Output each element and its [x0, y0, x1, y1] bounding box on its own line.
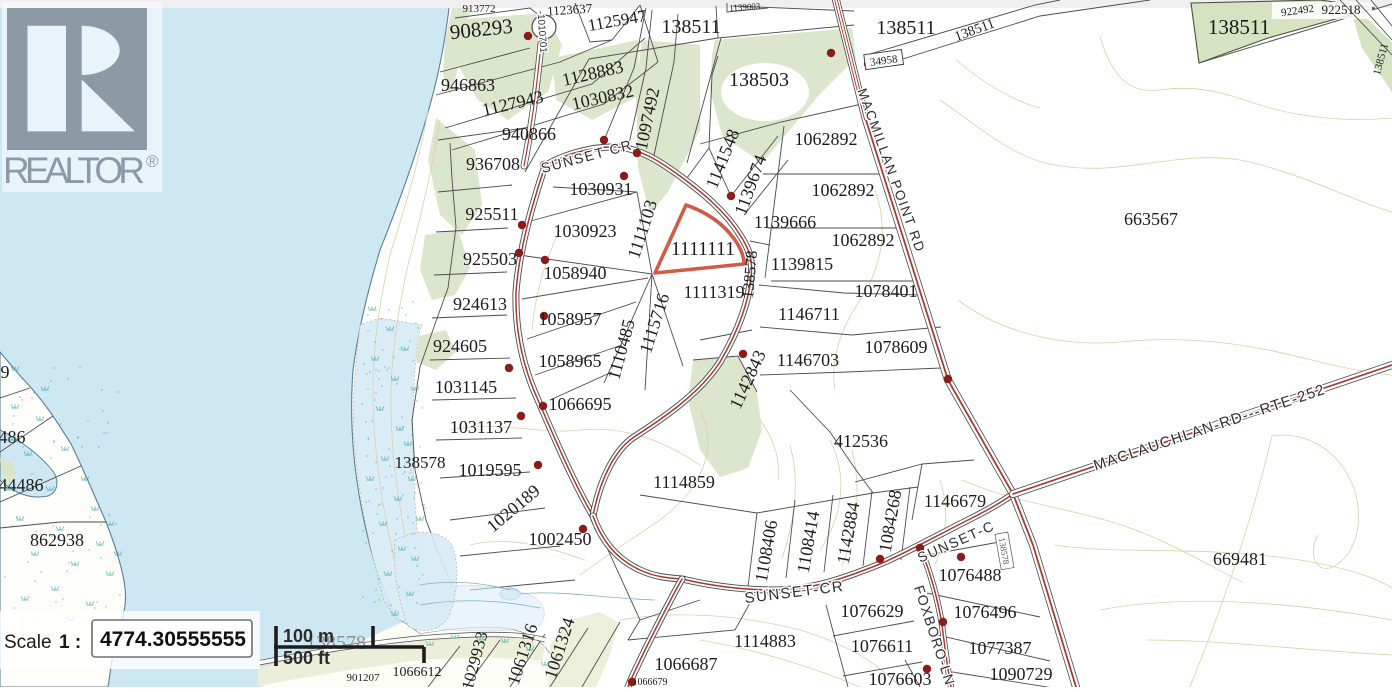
svg-text:1066612: 1066612	[393, 665, 442, 680]
svg-text:1111319: 1111319	[684, 282, 745, 302]
svg-text:Scale: Scale	[4, 632, 52, 653]
svg-text:925503: 925503	[463, 249, 517, 269]
svg-text:1058957: 1058957	[539, 309, 602, 329]
svg-text:1090729: 1090729	[990, 664, 1053, 684]
svg-text:1058940: 1058940	[544, 263, 607, 283]
svg-text:1062892: 1062892	[795, 129, 858, 149]
svg-text:924605: 924605	[433, 336, 487, 356]
svg-text:1076611: 1076611	[851, 636, 913, 656]
svg-text:®: ®	[146, 152, 159, 171]
svg-text:1076496: 1076496	[954, 602, 1017, 622]
svg-text:500 ft: 500 ft	[283, 648, 330, 668]
svg-text:1076629: 1076629	[841, 601, 904, 621]
svg-text:138511: 138511	[876, 17, 935, 39]
svg-text:44486: 44486	[0, 475, 44, 495]
svg-text:1078609: 1078609	[865, 337, 928, 357]
svg-text:1139666: 1139666	[754, 212, 816, 232]
svg-text:925511: 925511	[465, 204, 518, 224]
svg-text:1114859: 1114859	[653, 472, 715, 492]
svg-text:936708: 936708	[466, 154, 520, 174]
svg-text:1066679: 1066679	[633, 677, 668, 687]
svg-text:1058965: 1058965	[539, 351, 602, 371]
svg-text:901207: 901207	[347, 672, 381, 684]
svg-text:1077387: 1077387	[969, 638, 1032, 658]
svg-text:663567: 663567	[1124, 209, 1178, 229]
svg-text:1031145: 1031145	[435, 377, 497, 397]
svg-text:REALTOR: REALTOR	[3, 150, 145, 191]
svg-text:862938: 862938	[30, 530, 84, 550]
svg-text:669481: 669481	[1213, 549, 1267, 569]
svg-text:1019595: 1019595	[459, 460, 522, 480]
svg-text:1066695: 1066695	[549, 394, 612, 414]
svg-text:1076488: 1076488	[939, 565, 1002, 585]
svg-text:946863: 946863	[441, 75, 495, 95]
svg-text:138511: 138511	[661, 16, 720, 38]
svg-text:1030923: 1030923	[554, 221, 617, 241]
svg-text:1 :: 1 :	[59, 632, 81, 653]
svg-text:1030931: 1030931	[570, 179, 633, 199]
svg-text:922518: 922518	[1322, 2, 1361, 17]
svg-text:9: 9	[1, 362, 10, 382]
svg-text:412536: 412536	[834, 431, 888, 451]
svg-text:1114883: 1114883	[734, 631, 796, 651]
svg-text:1146703: 1146703	[777, 350, 839, 370]
svg-text:1066687: 1066687	[655, 654, 718, 674]
svg-text:138578: 138578	[395, 453, 446, 472]
svg-text:486: 486	[0, 427, 26, 447]
svg-text:1031137: 1031137	[450, 417, 512, 437]
svg-text:924613: 924613	[453, 294, 507, 314]
svg-text:1062892: 1062892	[832, 230, 895, 250]
svg-text:1002450: 1002450	[529, 529, 592, 549]
svg-text:100 m: 100 m	[283, 626, 334, 646]
svg-text:138511: 138511	[1208, 15, 1270, 39]
svg-text:4774.30555555: 4774.30555555	[100, 628, 246, 651]
svg-text:1078401: 1078401	[855, 281, 918, 301]
svg-text:1062892: 1062892	[812, 180, 875, 200]
svg-text:940866: 940866	[502, 124, 556, 144]
svg-text:1146679: 1146679	[924, 491, 986, 511]
svg-text:1076603: 1076603	[869, 669, 932, 687]
svg-text:1139815: 1139815	[771, 254, 833, 274]
svg-text:1146711: 1146711	[778, 304, 840, 324]
svg-text:1111111: 1111111	[671, 239, 735, 260]
svg-text:913772: 913772	[463, 3, 496, 15]
svg-text:138503: 138503	[729, 69, 789, 91]
